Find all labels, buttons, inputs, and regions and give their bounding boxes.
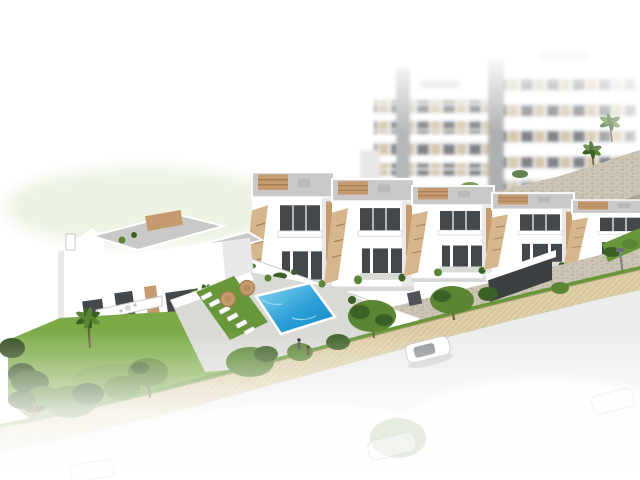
pool-planter [265, 275, 272, 282]
entrance-gate [407, 291, 422, 306]
hill-shrub [512, 170, 528, 178]
pool-planter [291, 269, 297, 275]
terrace-chair [133, 303, 136, 306]
daybed-center [225, 296, 232, 303]
terrace-table [125, 305, 131, 311]
pool-planter [319, 281, 326, 288]
apartment-window-row [374, 163, 492, 176]
roof-plant [131, 232, 137, 238]
apartment-window-row [374, 142, 492, 155]
architectural-render [0, 0, 640, 480]
sky-white-fade [0, 0, 640, 132]
pool-planter [348, 296, 356, 304]
street-shrub [478, 287, 498, 301]
daybed-center [244, 285, 251, 292]
right-white-fade [575, 0, 640, 150]
lamp-head [616, 248, 624, 252]
street-shrub [551, 282, 569, 294]
driveway-shrub [622, 239, 638, 249]
terrace-chair [119, 309, 122, 312]
chimney [66, 234, 75, 250]
roof-plant [119, 237, 126, 244]
townhouse-unit-3 [404, 186, 494, 282]
townhouse-unit-2 [324, 179, 414, 291]
